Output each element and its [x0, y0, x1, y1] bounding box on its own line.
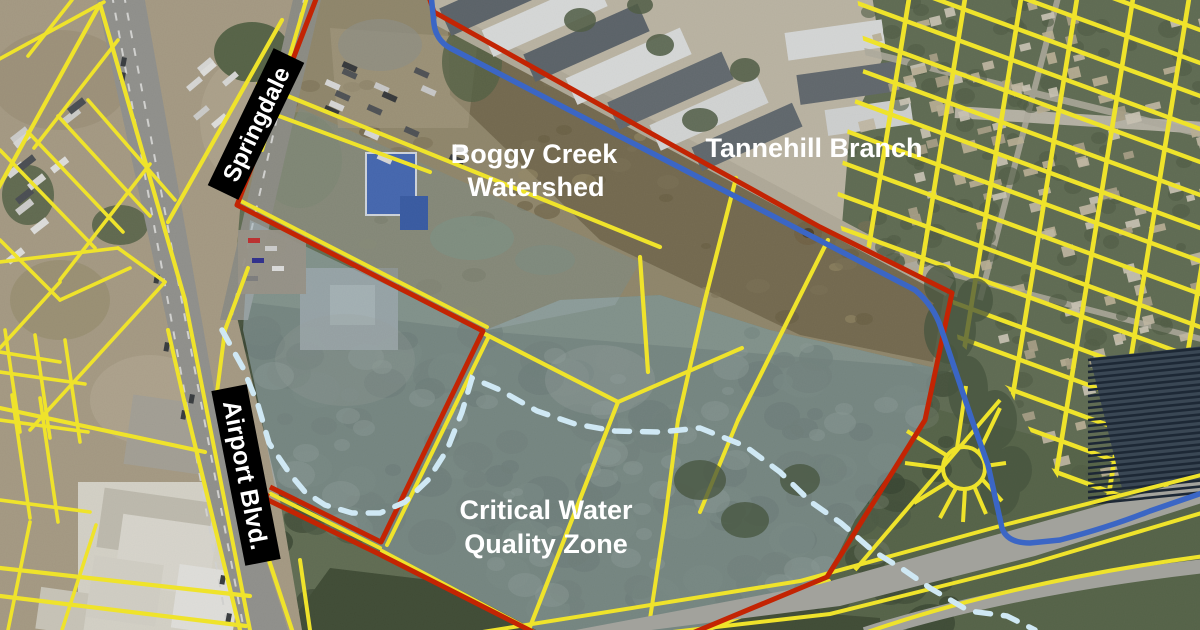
- svg-text:Quality Zone: Quality Zone: [464, 529, 628, 559]
- svg-text:Watershed: Watershed: [467, 172, 604, 202]
- svg-text:Boggy Creek: Boggy Creek: [451, 139, 619, 169]
- svg-text:Critical Water: Critical Water: [459, 495, 633, 525]
- svg-text:Tannehill Branch: Tannehill Branch: [705, 133, 922, 163]
